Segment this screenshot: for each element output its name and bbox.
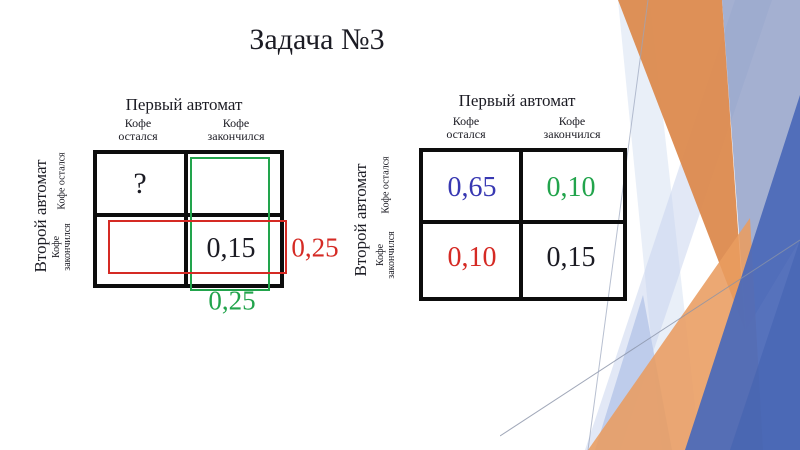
- right-cell-value-010-green: 0,10: [547, 172, 596, 204]
- right-table-row-header-coffee-out: Кофе закончился: [375, 226, 397, 284]
- right-table-grid-vertical-divider: [519, 152, 523, 297]
- right-table-col-header-coffee-out: Кофе закончился: [539, 115, 605, 141]
- red-row-sum-annotation: 0,25: [291, 233, 338, 264]
- green-col-sum-annotation: 0,25: [208, 286, 255, 317]
- right-cell-value-010-red: 0,10: [448, 242, 497, 274]
- left-table-col-header-coffee-remained: Кофе остался: [105, 117, 171, 143]
- right-cell-value-015: 0,15: [547, 242, 596, 274]
- right-table-grid: 0,65 0,10 0,10 0,15: [419, 148, 627, 301]
- red-highlight-rect: [108, 220, 287, 274]
- right-table-second-machine-label: Второй автомат: [351, 163, 371, 276]
- right-table-row-header-coffee-remained: Кофе остался: [380, 156, 391, 214]
- right-table-col-header-coffee-remained: Кофе остался: [433, 115, 499, 141]
- left-table-row-header-coffee-out: Кофе закончился: [51, 218, 73, 276]
- slide: Задача №3 Первый автомат Кофе остался Ко…: [0, 0, 800, 450]
- right-table-grid-horizontal-divider: [423, 220, 623, 224]
- left-table-col-header-coffee-out: Кофе закончился: [203, 117, 269, 143]
- right-table-first-machine-label: Первый автомат: [459, 91, 576, 111]
- left-table-row-header-coffee-remained: Кофе остался: [56, 152, 67, 210]
- left-table-first-machine-label: Первый автомат: [126, 95, 243, 115]
- right-cell-value-065: 0,65: [448, 172, 497, 204]
- left-table-second-machine-label: Второй автомат: [31, 159, 51, 272]
- left-cell-unknown: ?: [133, 167, 146, 201]
- slide-title: Задача №3: [249, 23, 384, 57]
